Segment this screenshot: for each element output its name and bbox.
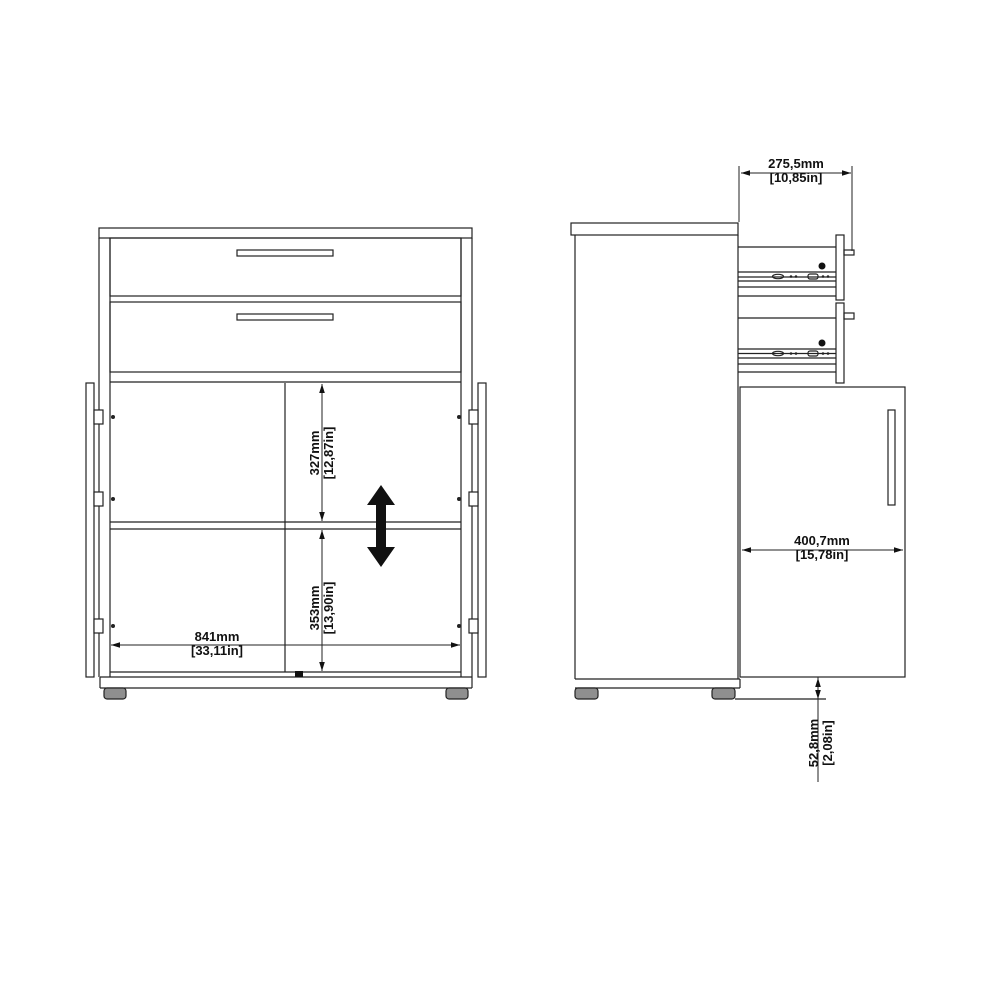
cabinet-linework (0, 0, 1000, 1000)
dimension-lower-height: 353mm [13,90in] (308, 582, 336, 635)
drawer-1-handle (237, 250, 333, 256)
front-view (86, 228, 486, 699)
drawing-canvas: 275,5mm [10,85in] 400,7mm [15,78in] 841m… (0, 0, 1000, 1000)
drawer-1-front-edge (836, 235, 844, 300)
dimension-upper-height-mm: 327mm (308, 427, 322, 480)
hinge-icon (94, 410, 103, 424)
right-door-edge (478, 383, 486, 677)
dimension-interior-width-in: [33,11in] (191, 644, 243, 658)
open-door-panel (740, 387, 905, 677)
dimension-foot-height-in: [2,08in] (821, 719, 835, 767)
hinge-icon (94, 492, 103, 506)
foot (712, 688, 735, 699)
dimension-foot-height: 52,8mm [2,08in] (807, 719, 835, 767)
dimension-depth: 275,5mm [10,85in] (768, 157, 824, 185)
dimension-arrowheads (111, 170, 903, 699)
hinge-icon (469, 619, 478, 633)
dimension-upper-height-in: [12,87in] (322, 427, 336, 480)
dimension-interior-width-mm: 841mm (191, 630, 243, 644)
hinge-icon (469, 492, 478, 506)
dimension-lower-height-in: [13,90in] (322, 582, 336, 635)
dimension-foot-height-mm: 52,8mm (807, 719, 821, 767)
dimension-upper-height: 327mm [12,87in] (308, 427, 336, 480)
dimension-door-width: 400,7mm [15,78in] (794, 534, 850, 562)
foot (446, 688, 468, 699)
foot (104, 688, 126, 699)
left-door-edge (86, 383, 94, 677)
drawer-2-front (110, 302, 461, 372)
dimension-door-width-mm: 400,7mm (794, 534, 850, 548)
top-panel-side (571, 223, 738, 235)
dimension-depth-in: [10,85in] (768, 171, 824, 185)
dimension-lines (111, 166, 903, 782)
top-panel (99, 228, 472, 238)
drawer-2-handle (237, 314, 333, 320)
dimension-door-width-in: [15,78in] (794, 548, 850, 562)
drawer-1-front (110, 238, 461, 296)
center-support (295, 671, 303, 677)
dimension-lower-height-mm: 353mm (308, 582, 322, 635)
drawer-2-front-edge (836, 303, 844, 383)
side-view (571, 223, 905, 699)
slide-wheel (819, 340, 826, 347)
slide-wheel (819, 263, 826, 270)
door-handle-slot (888, 410, 895, 505)
drawer-2-handle-side (844, 313, 854, 319)
dimension-interior-width: 841mm [33,11in] (191, 630, 243, 658)
hinge-icon (469, 410, 478, 424)
dimension-depth-mm: 275,5mm (768, 157, 824, 171)
drawer-1-side (738, 235, 854, 300)
drawer-2-side (738, 303, 854, 383)
adjustable-shelf-arrow-icon (367, 485, 395, 567)
hinge-icon (94, 619, 103, 633)
foot (575, 688, 598, 699)
